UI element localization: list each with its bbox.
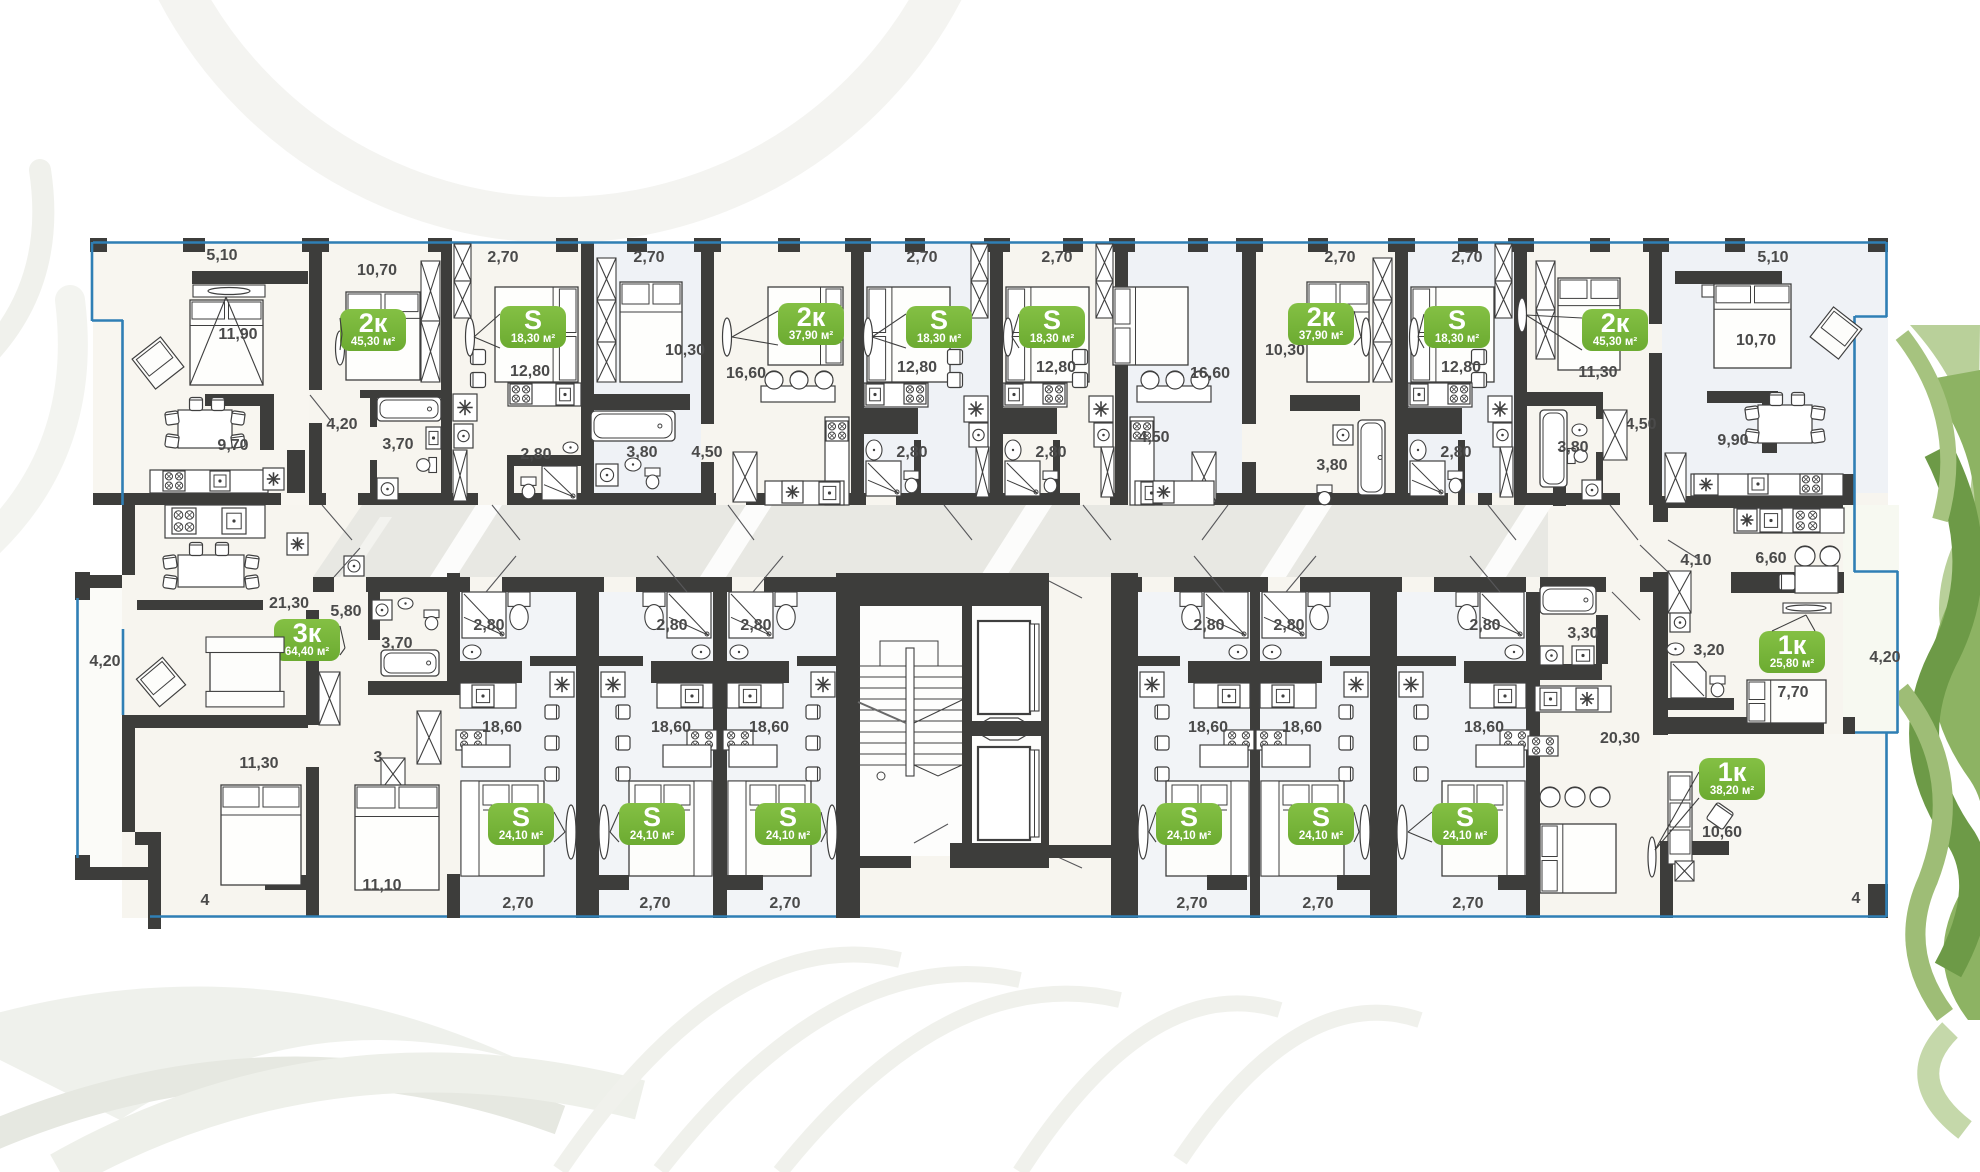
svg-text:18,30 м²: 18,30 м² (511, 333, 555, 345)
svg-text:4,20: 4,20 (89, 653, 120, 670)
svg-text:24,10 м²: 24,10 м² (1299, 830, 1343, 842)
svg-text:3,70: 3,70 (382, 436, 413, 453)
svg-text:6,60: 6,60 (1755, 550, 1786, 567)
svg-text:37,90 м²: 37,90 м² (1299, 330, 1343, 342)
svg-text:10,70: 10,70 (1736, 332, 1776, 349)
svg-text:2,70: 2,70 (1324, 249, 1355, 266)
svg-text:20,30: 20,30 (1600, 730, 1640, 747)
svg-text:4,50: 4,50 (1625, 416, 1656, 433)
svg-text:1к: 1к (1718, 757, 1747, 787)
svg-text:S: S (1456, 802, 1474, 832)
svg-text:S: S (1043, 305, 1061, 335)
svg-text:S: S (1180, 802, 1198, 832)
svg-text:2,70: 2,70 (487, 249, 518, 266)
svg-text:2,70: 2,70 (906, 249, 937, 266)
svg-text:S: S (512, 802, 530, 832)
svg-text:3,80: 3,80 (1316, 457, 1347, 474)
svg-text:10,70: 10,70 (357, 262, 397, 279)
svg-text:16,60: 16,60 (1190, 365, 1230, 382)
svg-text:10,60: 10,60 (1702, 824, 1742, 841)
svg-text:4,20: 4,20 (1869, 649, 1900, 666)
svg-text:16,60: 16,60 (726, 365, 766, 382)
svg-text:S: S (1448, 305, 1466, 335)
svg-text:3,20: 3,20 (1693, 642, 1724, 659)
svg-text:2,70: 2,70 (1451, 249, 1482, 266)
svg-text:11,90: 11,90 (218, 326, 257, 343)
svg-text:3,70: 3,70 (381, 635, 412, 652)
svg-text:4,20: 4,20 (326, 416, 357, 433)
svg-text:11,10: 11,10 (362, 877, 401, 894)
svg-text:18,60: 18,60 (651, 719, 691, 736)
svg-text:2,80: 2,80 (1035, 444, 1066, 461)
svg-text:2,70: 2,70 (1302, 895, 1333, 912)
svg-text:S: S (930, 305, 948, 335)
svg-text:2,70: 2,70 (633, 249, 664, 266)
svg-text:2,80: 2,80 (1193, 617, 1224, 634)
svg-text:4,50: 4,50 (691, 444, 722, 461)
svg-text:3,30: 3,30 (1567, 625, 1598, 642)
svg-text:18,60: 18,60 (482, 719, 522, 736)
svg-text:10,30: 10,30 (665, 342, 705, 359)
svg-text:2,70: 2,70 (639, 895, 670, 912)
svg-text:2к: 2к (1307, 302, 1336, 332)
svg-text:2,80: 2,80 (520, 446, 551, 463)
svg-text:37,90 м²: 37,90 м² (789, 330, 833, 342)
svg-text:11,30: 11,30 (239, 755, 278, 772)
svg-text:5,10: 5,10 (206, 247, 237, 264)
svg-text:64,40 м²: 64,40 м² (285, 646, 329, 658)
svg-text:4: 4 (201, 892, 210, 909)
svg-text:9,90: 9,90 (1717, 432, 1748, 449)
svg-text:2,80: 2,80 (896, 444, 927, 461)
svg-text:3к: 3к (293, 618, 322, 648)
svg-text:9,70: 9,70 (217, 437, 248, 454)
svg-text:18,30 м²: 18,30 м² (1435, 333, 1479, 345)
svg-text:45,30 м²: 45,30 м² (1593, 336, 1637, 348)
svg-text:12,80: 12,80 (1441, 359, 1481, 376)
svg-text:2к: 2к (359, 308, 388, 338)
svg-text:S: S (524, 305, 542, 335)
svg-text:38,20 м²: 38,20 м² (1710, 785, 1754, 797)
svg-text:12,80: 12,80 (1036, 359, 1076, 376)
svg-text:5,10: 5,10 (1757, 249, 1788, 266)
svg-text:18,60: 18,60 (1282, 719, 1322, 736)
svg-text:S: S (779, 802, 797, 832)
svg-text:24,10 м²: 24,10 м² (630, 830, 674, 842)
svg-text:2,70: 2,70 (1041, 249, 1072, 266)
svg-text:3,80: 3,80 (1557, 439, 1588, 456)
svg-text:18,60: 18,60 (1188, 719, 1228, 736)
svg-text:2,80: 2,80 (1440, 444, 1471, 461)
svg-text:2,70: 2,70 (1452, 895, 1483, 912)
svg-text:24,10 м²: 24,10 м² (499, 830, 543, 842)
svg-text:2,70: 2,70 (1176, 895, 1207, 912)
svg-text:12,80: 12,80 (897, 359, 937, 376)
svg-text:45,30 м²: 45,30 м² (351, 336, 395, 348)
svg-text:24,10 м²: 24,10 м² (1167, 830, 1211, 842)
svg-text:2к: 2к (1601, 308, 1630, 338)
svg-text:12,80: 12,80 (510, 363, 550, 380)
svg-text:18,30 м²: 18,30 м² (917, 333, 961, 345)
svg-text:18,60: 18,60 (749, 719, 789, 736)
svg-text:4: 4 (1852, 890, 1861, 907)
svg-text:4,10: 4,10 (1680, 552, 1711, 569)
svg-text:S: S (1312, 802, 1330, 832)
svg-text:2,70: 2,70 (502, 895, 533, 912)
svg-text:3: 3 (374, 749, 383, 766)
svg-text:18,60: 18,60 (1464, 719, 1504, 736)
svg-text:2к: 2к (797, 302, 826, 332)
svg-text:1к: 1к (1778, 630, 1807, 660)
svg-text:11,30: 11,30 (1578, 364, 1617, 381)
svg-text:2,80: 2,80 (1273, 617, 1304, 634)
svg-text:18,30 м²: 18,30 м² (1030, 333, 1074, 345)
svg-text:2,70: 2,70 (769, 895, 800, 912)
svg-text:7,70: 7,70 (1777, 684, 1808, 701)
svg-text:S: S (643, 802, 661, 832)
svg-text:2,80: 2,80 (740, 617, 771, 634)
svg-text:2,80: 2,80 (1469, 617, 1500, 634)
svg-text:5,80: 5,80 (330, 603, 361, 620)
svg-text:25,80 м²: 25,80 м² (1770, 658, 1814, 670)
svg-text:24,10 м²: 24,10 м² (1443, 830, 1487, 842)
svg-text:24,10 м²: 24,10 м² (766, 830, 810, 842)
svg-text:2,80: 2,80 (473, 617, 504, 634)
svg-text:4,50: 4,50 (1138, 429, 1169, 446)
svg-text:21,30: 21,30 (269, 595, 309, 612)
svg-text:2,80: 2,80 (656, 617, 687, 634)
